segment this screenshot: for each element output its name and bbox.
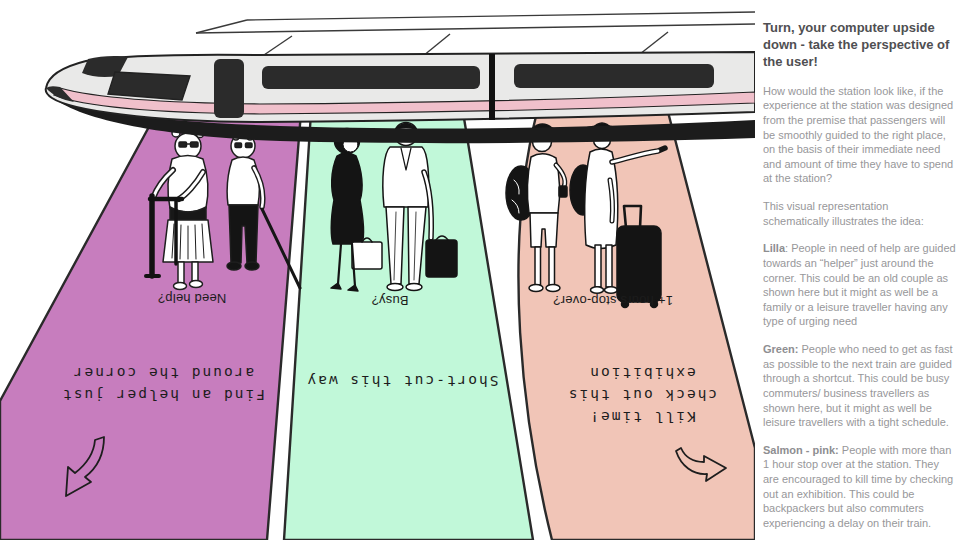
panel-section-lilla: Lilla: People in need of help are guided… (763, 241, 957, 329)
train-window-band-2 (514, 64, 714, 88)
panel-title: Turn, your computer upside down - take t… (763, 20, 957, 71)
station-scene (0, 0, 755, 540)
panel-intro: How would the station look like, if the … (763, 84, 957, 186)
panel-section-green-lead: Green: (763, 343, 798, 355)
panel-section-green: Green: People who need to get as fast as… (763, 342, 957, 430)
panel-caption: This visual representation schematically… (763, 199, 957, 228)
train-door (214, 59, 244, 118)
panel-section-salmon-text: People with more than 1 hour stop over a… (763, 444, 953, 529)
side-panel: Turn, your computer upside down - take t… (763, 20, 957, 540)
platform-lines (196, 12, 755, 57)
train-car-separator (489, 54, 495, 120)
panel-section-green-text: People who need to get as fast as possib… (763, 343, 953, 428)
panel-section-lilla-lead: Lilla (763, 242, 785, 254)
train-window-band-1 (262, 66, 480, 89)
station-illustration: Need help? Busy? 1+ hours stop-over? Fin… (0, 0, 755, 540)
panel-section-salmon-lead: Salmon - pink: (763, 444, 839, 456)
panel-section-salmon: Salmon - pink: People with more than 1 h… (763, 443, 957, 531)
slide: Need help? Busy? 1+ hours stop-over? Fin… (0, 0, 960, 540)
panel-section-lilla-text: : People in need of help are guided towa… (763, 242, 956, 327)
train (46, 52, 755, 143)
